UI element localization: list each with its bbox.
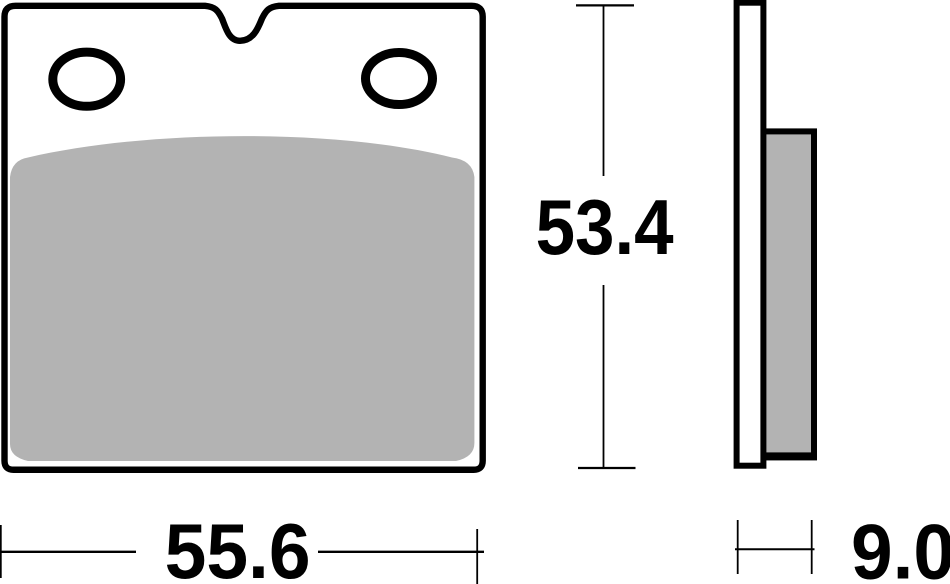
svg-text:55.6: 55.6 [165,507,311,584]
svg-text:9.0: 9.0 [851,507,950,584]
svg-text:53.4: 53.4 [536,183,674,271]
